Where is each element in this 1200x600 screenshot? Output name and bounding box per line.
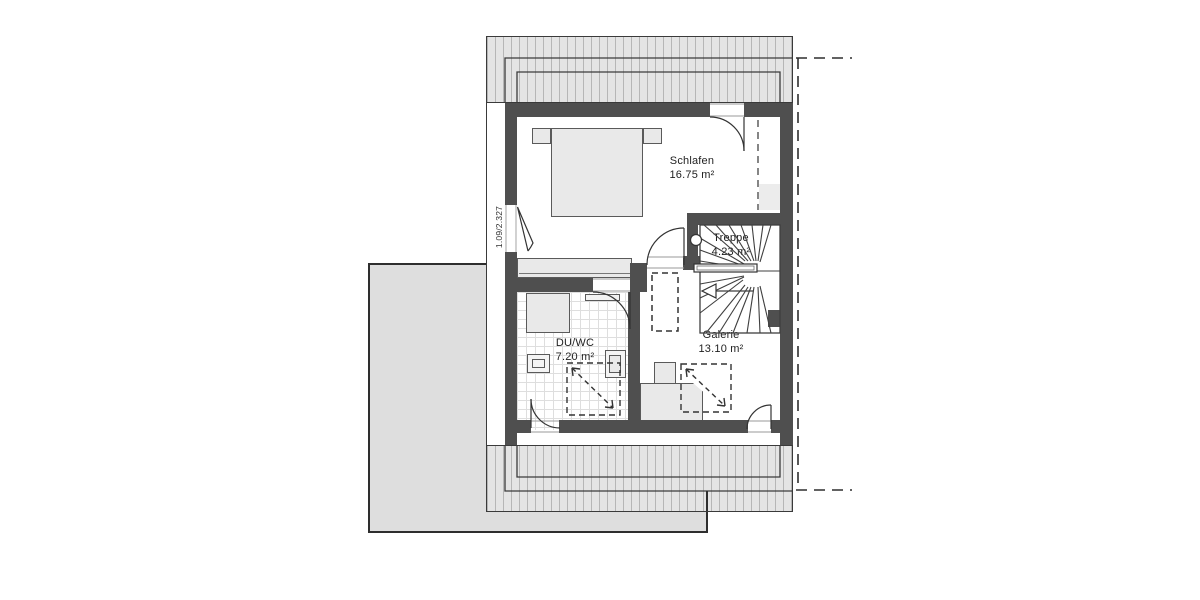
- room-label-galerie: Galerie 13.10 m²: [685, 329, 757, 356]
- neighbor-house-dashed: [796, 58, 852, 490]
- wardrobe-front-line: [519, 273, 630, 274]
- wall-left-upper: [505, 103, 517, 205]
- roof-band-top: [487, 37, 792, 103]
- room-label-duwc: DU/WC 7.20 m²: [540, 337, 610, 364]
- room-area: 16.75 m²: [657, 169, 727, 183]
- toilet-bowl: [609, 355, 621, 373]
- wardrobe: [517, 258, 632, 278]
- wall-right: [780, 103, 793, 445]
- desk: [640, 383, 703, 422]
- room-label-treppe: Treppe 4.23 m²: [699, 232, 763, 259]
- chair: [654, 362, 676, 384]
- roof-band-bottom: [487, 445, 792, 511]
- room-label-schlafen: Schlafen 16.75 m²: [657, 155, 727, 182]
- room-name: Treppe: [699, 232, 763, 246]
- wall-bottom-left: [505, 420, 531, 433]
- floor-plan: Schlafen 16.75 m² Treppe 4.23 m² DU/WC 7…: [0, 0, 1200, 600]
- wall-duwc-right: [628, 292, 640, 430]
- bath-shelf: [585, 294, 620, 301]
- nightstand-right: [643, 128, 662, 144]
- wall-bottom-right: [771, 420, 793, 433]
- wall-duwc-top: [505, 278, 593, 292]
- room-name: Galerie: [685, 329, 757, 343]
- wall-top-left: [505, 103, 710, 117]
- wall-stair-top: [687, 213, 780, 225]
- bed: [551, 128, 643, 217]
- wall-duwc-corner-pier: [630, 263, 647, 292]
- nightstand-left: [532, 128, 551, 144]
- room-area: 13.10 m²: [685, 343, 757, 357]
- door-size-annotation: 1.09/2.327: [494, 196, 504, 258]
- wall-bottom-center: [559, 420, 748, 433]
- shower-block: [526, 293, 570, 333]
- room-name: Schlafen: [657, 155, 727, 169]
- room-area: 7.20 m²: [540, 351, 610, 365]
- room-name: DU/WC: [540, 337, 610, 351]
- wall-stair-pier: [768, 310, 780, 327]
- room-area: 4.23 m²: [699, 246, 763, 260]
- headroom-patch: [759, 184, 780, 210]
